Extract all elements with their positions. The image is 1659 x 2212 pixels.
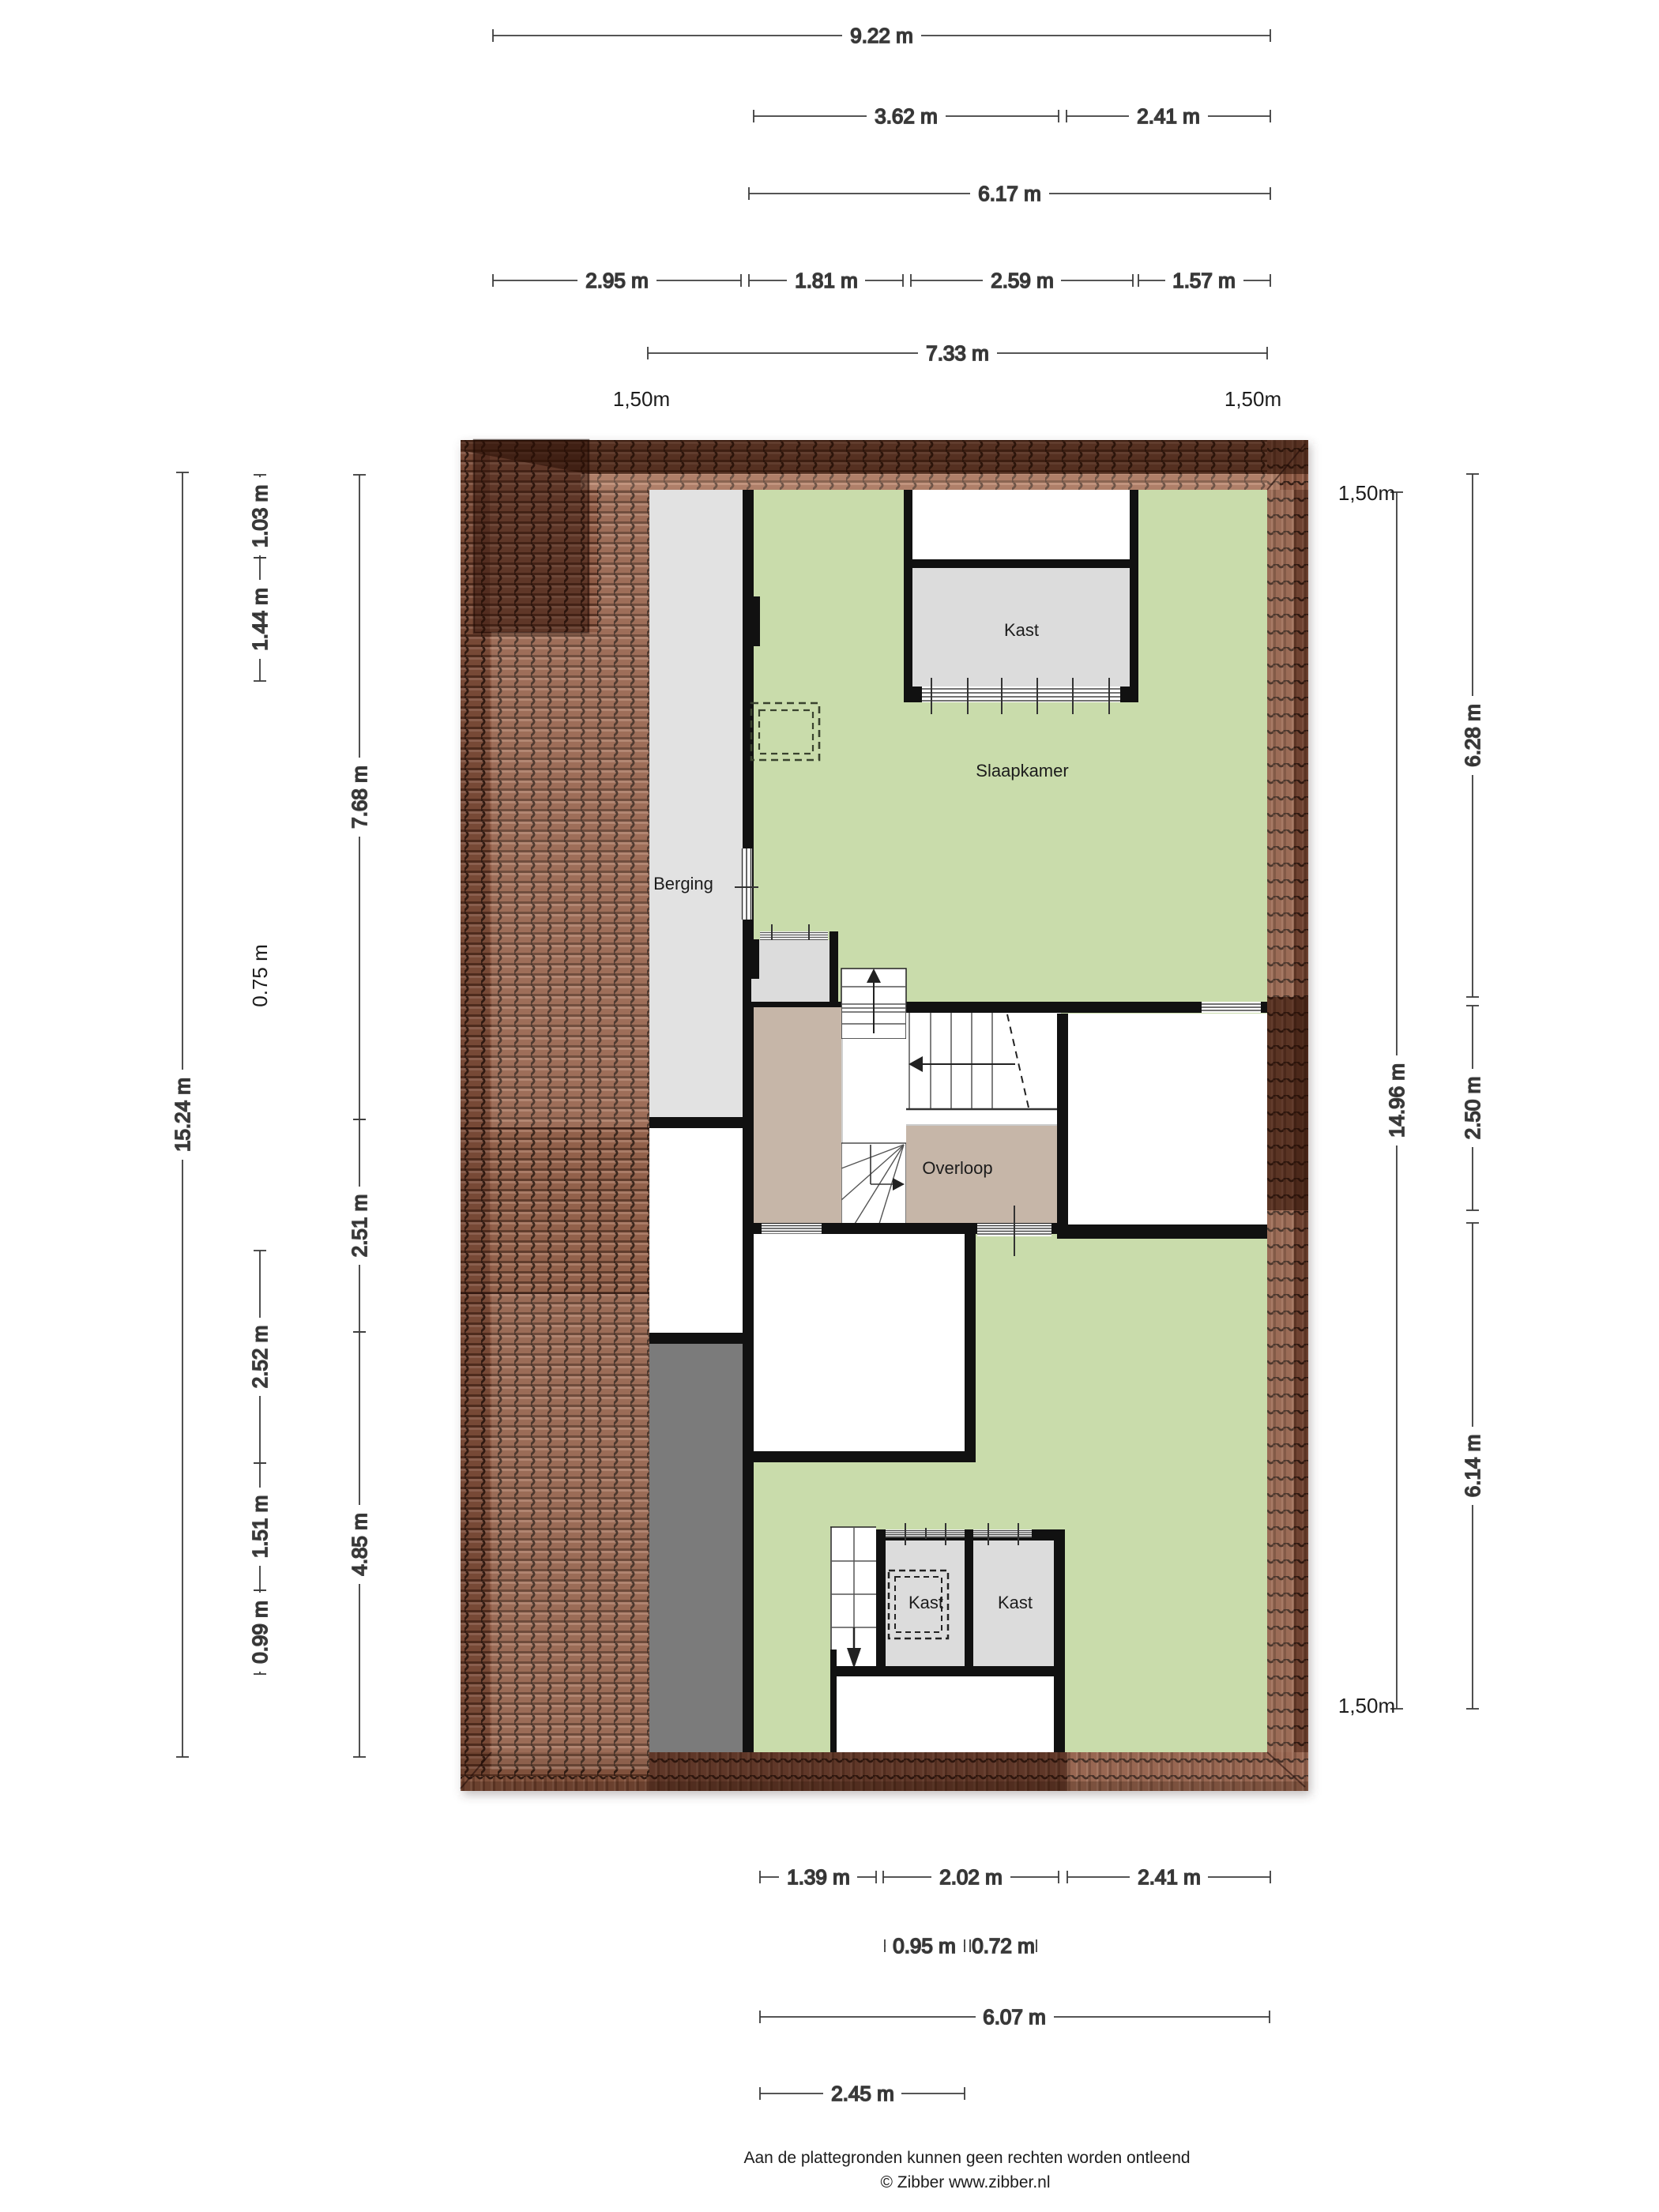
svg-text:9.22 m: 9.22 m <box>850 24 913 47</box>
svg-text:2.02 m: 2.02 m <box>939 1865 1003 1889</box>
svg-text:7.33 m: 7.33 m <box>926 341 989 365</box>
svg-text:1.81 m: 1.81 m <box>795 269 858 292</box>
svg-text:2.41 m: 2.41 m <box>1138 1865 1201 1889</box>
svg-text:2.59 m: 2.59 m <box>991 269 1054 292</box>
svg-text:6.28 m: 6.28 m <box>1461 704 1484 767</box>
svg-text:2.41 m: 2.41 m <box>1137 104 1200 128</box>
svg-text:4.85 m: 4.85 m <box>348 1513 371 1576</box>
svg-text:1.51 m: 1.51 m <box>248 1495 272 1559</box>
svg-text:1,50m: 1,50m <box>1224 387 1281 411</box>
svg-text:1.44 m: 1.44 m <box>248 588 272 651</box>
svg-text:6.17 m: 6.17 m <box>978 182 1041 205</box>
svg-text:1,50m: 1,50m <box>1338 1694 1395 1717</box>
svg-text:0.72 m: 0.72 m <box>972 1934 1035 1958</box>
svg-text:1.57 m: 1.57 m <box>1172 269 1236 292</box>
svg-text:2.50 m: 2.50 m <box>1461 1077 1484 1140</box>
svg-text:Slaapkamer: Slaapkamer <box>976 761 1068 781</box>
svg-text:15.24 m: 15.24 m <box>171 1078 194 1152</box>
svg-text:6.07 m: 6.07 m <box>983 2005 1046 2029</box>
svg-text:1,50m: 1,50m <box>613 387 670 411</box>
svg-text:6.14 m: 6.14 m <box>1461 1435 1484 1498</box>
svg-text:© Zibber www.zibber.nl: © Zibber www.zibber.nl <box>880 2173 1050 2191</box>
svg-text:0.75 m: 0.75 m <box>248 944 272 1007</box>
svg-text:Berging: Berging <box>653 874 713 893</box>
svg-text:Aan de plattegronden kunnen ge: Aan de plattegronden kunnen geen rechten… <box>743 2149 1190 2167</box>
svg-text:1.03 m: 1.03 m <box>248 485 272 548</box>
svg-text:2.52 m: 2.52 m <box>248 1326 272 1389</box>
svg-text:2.95 m: 2.95 m <box>585 269 649 292</box>
svg-text:1.39 m: 1.39 m <box>787 1865 850 1889</box>
svg-text:14.96 m: 14.96 m <box>1385 1063 1409 1138</box>
svg-text:7.68 m: 7.68 m <box>348 766 371 829</box>
svg-text:3.62 m: 3.62 m <box>875 104 938 128</box>
svg-text:0.95 m: 0.95 m <box>893 1934 956 1958</box>
svg-text:1,50m: 1,50m <box>1338 481 1395 505</box>
svg-text:Kast: Kast <box>908 1593 943 1612</box>
svg-text:Overloop: Overloop <box>922 1158 992 1178</box>
svg-text:0.99 m: 0.99 m <box>248 1601 272 1664</box>
svg-text:Kast: Kast <box>1004 620 1039 640</box>
svg-text:2.45 m: 2.45 m <box>831 2082 894 2105</box>
svg-text:Kast: Kast <box>998 1593 1033 1612</box>
svg-text:2.51 m: 2.51 m <box>348 1194 371 1258</box>
